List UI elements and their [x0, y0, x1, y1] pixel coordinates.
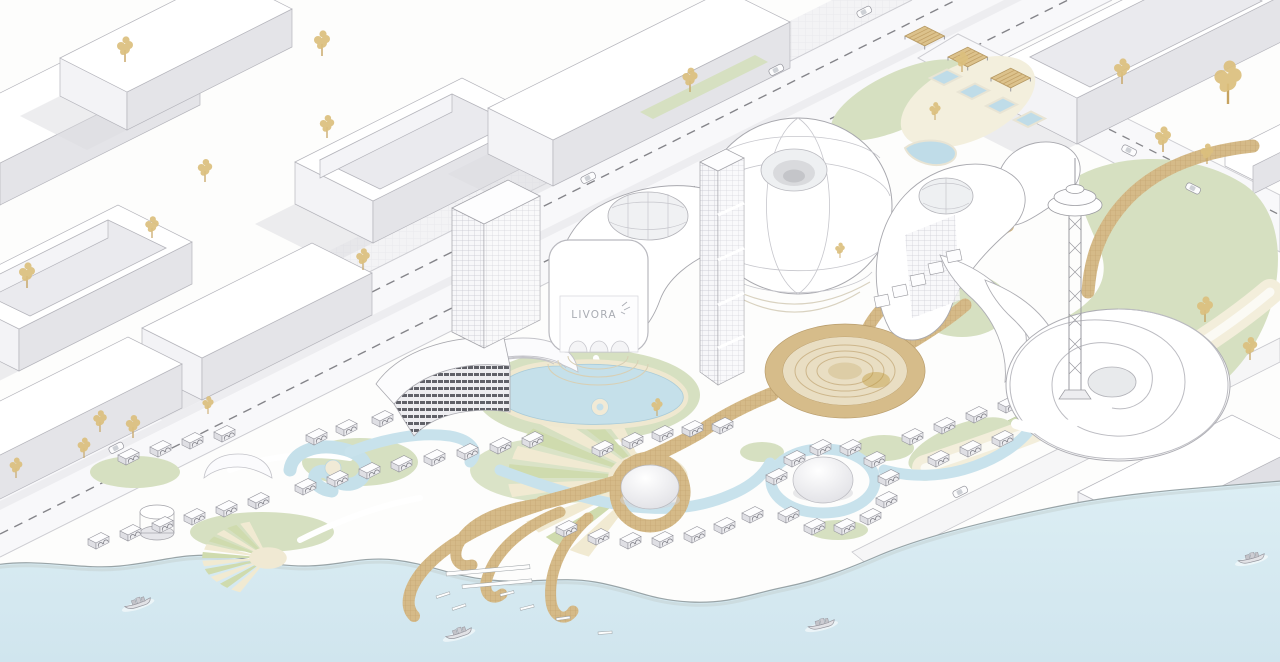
masterplan-canvas: LIVORA [0, 0, 1280, 662]
masterplan-rendering: LIVORA [0, 0, 1280, 662]
tree-shadow [862, 372, 890, 388]
slender-tower [700, 149, 744, 385]
amphitheater-stage [828, 363, 862, 380]
dome-pavilion [620, 465, 680, 509]
office-tower [452, 180, 540, 348]
livora-sign-text: LIVORA [571, 309, 616, 321]
spiral-courtyard [1088, 367, 1136, 397]
pool-island-water [597, 404, 604, 411]
dome-pavilion [793, 457, 853, 503]
torus-opening-core [783, 170, 805, 183]
gate-arches [569, 341, 629, 352]
spiral-building [1006, 309, 1230, 461]
